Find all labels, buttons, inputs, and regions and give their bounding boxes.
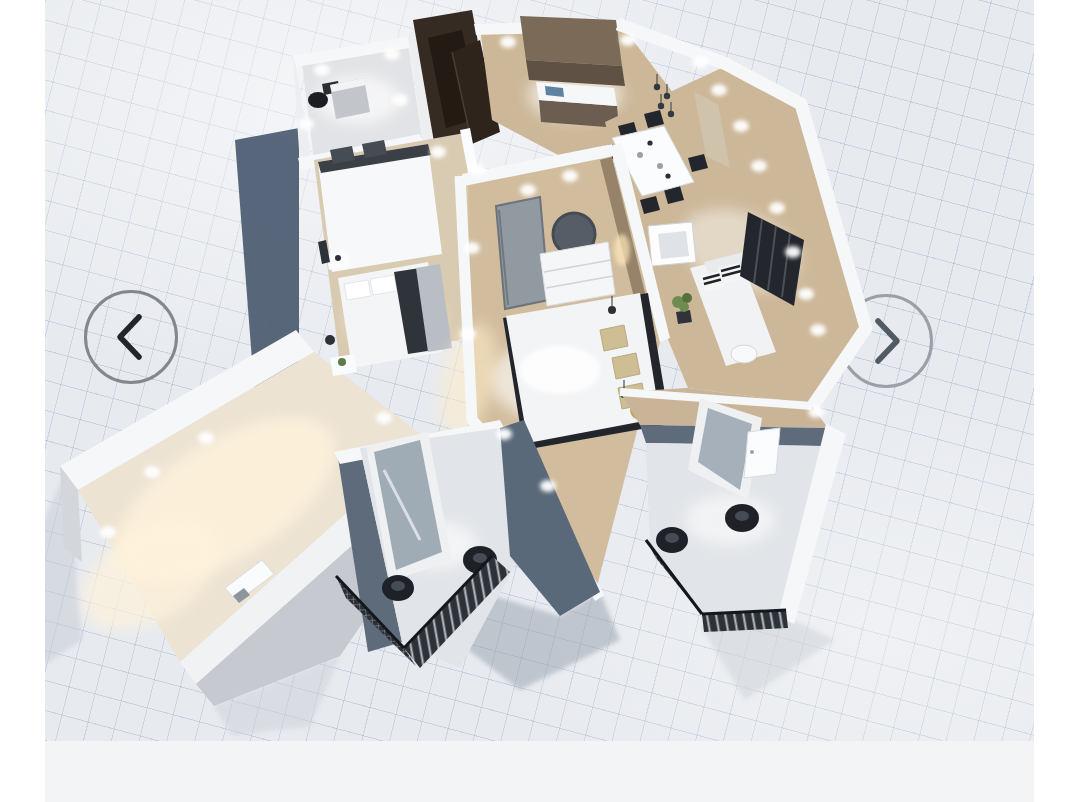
carousel-prev-button[interactable] <box>84 290 178 384</box>
chevron-left-icon <box>111 309 151 365</box>
bottom-panel <box>45 741 1034 802</box>
chevron-right-icon <box>866 313 906 369</box>
carousel-next-button[interactable] <box>839 294 933 388</box>
